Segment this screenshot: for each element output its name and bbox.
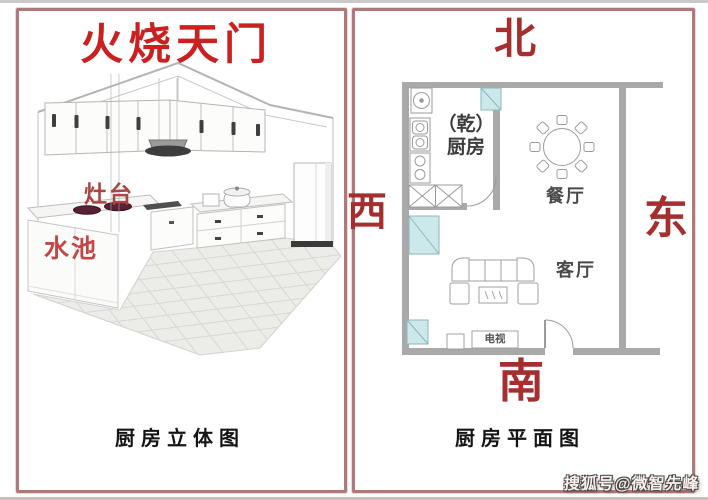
- left-caption: 厨房立体图: [80, 422, 280, 451]
- direction-west: 西: [347, 192, 387, 232]
- living-room-label: 客厅: [556, 261, 596, 279]
- fridge: [291, 163, 333, 247]
- dining-room-label: 餐厅: [546, 187, 586, 205]
- dining-table: [530, 116, 594, 179]
- right-caption: 厨房平面图: [420, 422, 620, 451]
- sofa-set: [450, 258, 538, 304]
- entry-door-arc: [545, 320, 573, 348]
- kitchen-3d-figure: [25, 58, 345, 363]
- rice-cooker: [224, 187, 250, 208]
- stove-burner: [74, 206, 101, 214]
- kitchen-label-name: 厨房: [430, 136, 502, 159]
- small-appliance: [203, 194, 219, 206]
- kitchen-door-arc: [467, 177, 496, 206]
- armchair-right: [518, 283, 538, 304]
- side-cabinet: [447, 334, 464, 349]
- tv-label: 电视: [472, 334, 518, 345]
- direction-north: 北: [494, 18, 536, 60]
- armchair-left: [450, 283, 469, 304]
- stove-label: 灶台: [84, 183, 134, 206]
- top-edge-strip: [0, 0, 708, 3]
- sink-label: 水池: [44, 237, 98, 262]
- feng-shui-kitchen-diagram: 火烧天门: [0, 0, 708, 500]
- kitchen-label-qian: （乾）: [430, 113, 502, 136]
- watermark: 搜狐号@微智先峰: [564, 470, 701, 494]
- kitchen-room-label: （乾） 厨房: [430, 113, 502, 159]
